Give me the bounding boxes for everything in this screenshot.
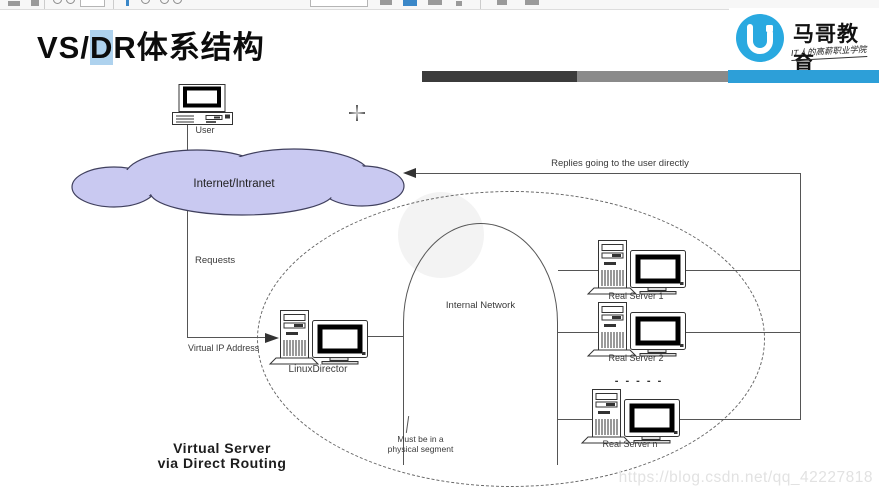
toolbar-divider [44,0,45,10]
toolbar-icon[interactable] [66,0,75,4]
virtual-ip-label: Virtual IP Address [188,343,259,353]
toolbar-icon[interactable] [525,0,539,5]
toolbar-input[interactable] [310,0,368,7]
toolbar-icon[interactable] [53,0,62,4]
page-title: VS/DR体系结构 [37,22,265,67]
rs2-right-line [686,332,800,333]
title-suffix: R体系结构 [113,30,264,65]
replies-label: Replies going to the user directly [495,158,745,169]
internal-network-label: Internal Network [403,300,558,311]
toolbar-icon[interactable] [8,1,20,6]
replies-arrowhead [403,168,416,178]
segment-note-line2: physical segment [363,444,478,454]
toolbar-icon[interactable] [428,0,442,5]
diagram-caption: Virtual Server via Direct Routing [127,441,317,471]
user-computer-icon [172,84,238,130]
server-ellipsis: - - - - - [614,375,664,387]
toolbar-input[interactable] [80,0,105,7]
brand-logo-icon [735,13,785,63]
toolbar-icon[interactable] [160,0,169,4]
brand-logo: 马哥教育 IT人的高薪职业学院 [729,8,879,70]
toolbar-icon[interactable] [31,0,39,6]
caption-line1: Virtual Server [127,441,317,456]
csdn-watermark: https://blog.csdn.net/qq_42227818 [619,469,873,487]
segment-note: Must be in a physical segment [363,434,478,454]
progress-segment-blue [728,70,879,83]
mouse-cursor [349,105,365,121]
requests-label: Requests [195,255,235,266]
toolbar-icon[interactable] [141,0,150,4]
replies-line [415,173,800,174]
rsn-right-line [680,419,800,420]
internet-cloud: Internet/Intranet [62,143,407,226]
server-bus-line [800,173,801,420]
toolbar-icon[interactable] [173,0,182,4]
caption-line2: via Direct Routing [127,456,317,471]
screen: VS/DR体系结构 马哥教育 IT人的高薪职业学院 Internal Netwo… [0,0,879,500]
user-label: User [172,125,238,135]
title-highlighted-char: D [90,30,113,65]
title-prefix: VS/ [37,30,90,65]
cloud-label: Internet/Intranet [193,178,275,190]
linux-director-label: LinuxDirector [261,364,375,375]
internal-network-arch [403,223,558,465]
toolbar-arrow-icon[interactable] [456,1,462,6]
toolbar-divider [113,0,114,10]
linux-director-icon [266,308,370,371]
virtual-ip-line [187,337,265,338]
progress-segment-gray [577,71,728,82]
toolbar-divider [480,0,481,10]
rs1-right-line [686,270,800,271]
toolbar-icon[interactable] [497,0,507,5]
real-server-2-label: Real Server 2 [581,353,691,363]
toolbar-icon[interactable] [380,0,392,5]
toolbar-icon[interactable] [403,0,417,6]
segment-note-line1: Must be in a [363,434,478,444]
toolbar-icon[interactable] [126,0,129,6]
progress-segment-dark [422,71,577,82]
director-network-line [368,336,403,337]
real-server-n-label: Real Server n [575,439,685,449]
